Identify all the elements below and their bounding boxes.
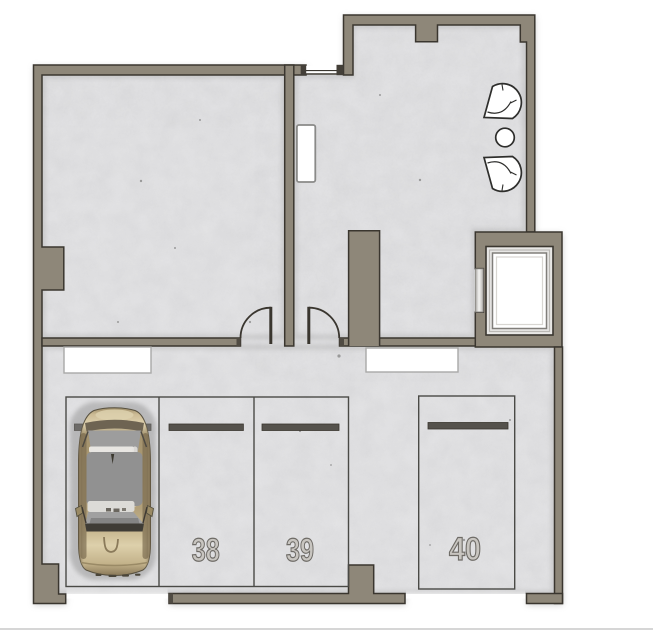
svg-text:39: 39 xyxy=(286,532,314,568)
svg-text:38: 38 xyxy=(192,532,220,568)
svg-text:40: 40 xyxy=(449,531,481,567)
